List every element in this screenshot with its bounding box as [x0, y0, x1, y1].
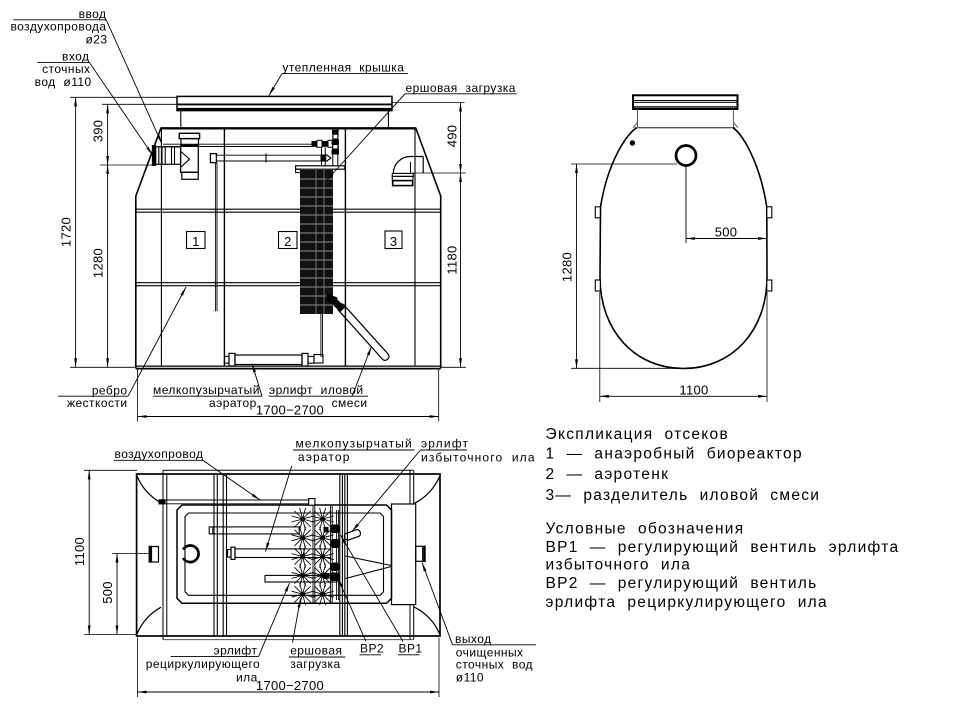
svg-text:500: 500 — [715, 225, 738, 240]
svg-text:1700−2700: 1700−2700 — [256, 678, 324, 693]
svg-text:вод ø110: вод ø110 — [35, 75, 92, 89]
svg-text:1700−2700: 1700−2700 — [256, 403, 324, 418]
svg-text:390: 390 — [91, 120, 106, 143]
svg-text:ø23: ø23 — [85, 33, 107, 47]
svg-text:воздухопровод: воздухопровод — [115, 447, 204, 461]
svg-text:ВР2: ВР2 — [360, 641, 384, 655]
svg-text:избыточного ила: избыточного ила — [546, 556, 692, 573]
svg-text:эрлифт: эрлифт — [421, 437, 469, 451]
svg-text:3— разделитель иловой смеси: 3— разделитель иловой смеси — [546, 487, 821, 504]
svg-text:1280: 1280 — [91, 248, 106, 278]
svg-text:ВР1 — регулирующий вентиль эрл: ВР1 — регулирующий вентиль эрлифта — [546, 539, 900, 556]
svg-text:утепленная крышка: утепленная крышка — [282, 61, 404, 75]
svg-text:эрлифт иловой: эрлифт иловой — [269, 383, 364, 397]
svg-text:Экспликация отсеков: Экспликация отсеков — [546, 426, 730, 443]
svg-text:ø110: ø110 — [456, 671, 484, 685]
svg-text:мелкопузырчатый: мелкопузырчатый — [153, 383, 260, 397]
svg-text:1280: 1280 — [560, 252, 575, 282]
svg-text:1180: 1180 — [445, 245, 460, 274]
svg-text:избыточного ила: избыточного ила — [421, 451, 536, 465]
svg-text:1100: 1100 — [72, 537, 87, 566]
svg-text:ершовая загрузка: ершовая загрузка — [406, 81, 516, 95]
svg-text:аэратор: аэратор — [298, 450, 351, 464]
svg-text:1100: 1100 — [679, 382, 708, 397]
svg-text:1720: 1720 — [59, 217, 74, 247]
svg-text:загрузка: загрузка — [290, 657, 340, 671]
svg-text:Условные обозначения: Условные обозначения — [546, 520, 745, 537]
svg-text:2 — аэротенк: 2 — аэротенк — [546, 466, 670, 483]
svg-text:3: 3 — [390, 234, 397, 249]
svg-text:мелкопузырчатый: мелкопузырчатый — [296, 437, 413, 451]
svg-text:490: 490 — [445, 125, 460, 148]
svg-text:ершовая: ершовая — [290, 643, 342, 657]
svg-text:1 — анаэробный биореактор: 1 — анаэробный биореактор — [546, 445, 803, 462]
svg-text:2: 2 — [284, 234, 291, 249]
svg-text:выход: выход — [455, 632, 492, 646]
svg-text:эрлифта рециркулирующего ила: эрлифта рециркулирующего ила — [546, 594, 828, 611]
svg-text:смеси: смеси — [332, 396, 368, 410]
svg-text:воздухопровода: воздухопровода — [10, 20, 106, 34]
svg-text:500: 500 — [100, 581, 115, 604]
svg-text:аэратор: аэратор — [209, 396, 257, 410]
svg-text:сточных вод: сточных вод — [456, 658, 533, 672]
svg-text:ила: ила — [236, 671, 258, 685]
svg-text:жесткости: жесткости — [67, 396, 128, 410]
svg-text:1: 1 — [192, 234, 199, 249]
svg-text:рециркулирующего: рециркулирующего — [146, 657, 260, 671]
svg-text:ВР1: ВР1 — [399, 641, 423, 655]
svg-text:ВР2 — регулирующий вентиль: ВР2 — регулирующий вентиль — [546, 575, 818, 592]
svg-text:эрлифт: эрлифт — [214, 643, 258, 657]
